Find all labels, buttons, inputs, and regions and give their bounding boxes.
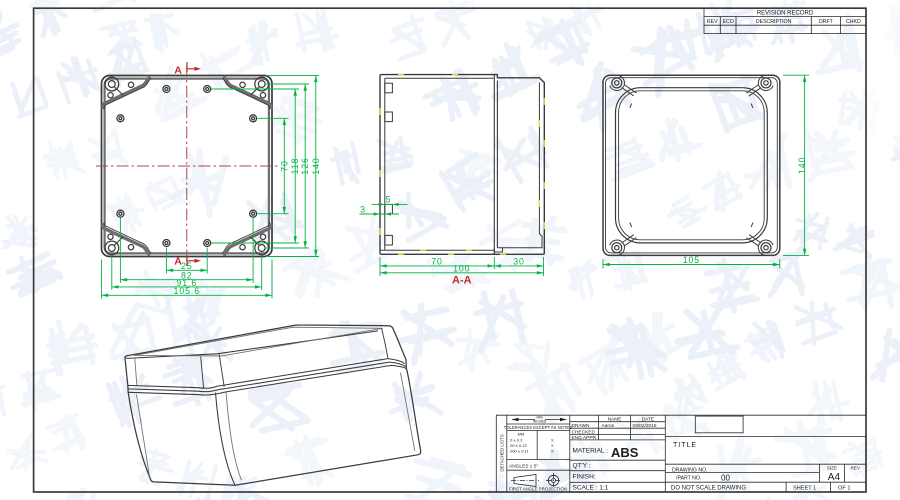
svg-text:70: 70 — [431, 257, 443, 267]
svg-text:.0 ± 0.3: .0 ± 0.3 — [509, 438, 523, 443]
svg-text:TOLERANCES EXCEPT AS NOTED: TOLERANCES EXCEPT AS NOTED — [504, 425, 573, 430]
svg-text:MATERIAL :: MATERIAL : — [573, 448, 609, 455]
svg-text:5: 5 — [386, 195, 392, 205]
svg-text:REVISION RECORD: REVISION RECORD — [757, 11, 814, 17]
svg-text:DATE: DATE — [642, 416, 654, 422]
svg-text:A4: A4 — [828, 472, 841, 483]
svg-text:SIZE: SIZE — [827, 466, 837, 471]
svg-text:FIRST ANGLE PROJECTION: FIRST ANGLE PROJECTION — [509, 487, 567, 492]
svg-text:CHECKED: CHECKED — [572, 429, 596, 435]
svg-text:.000 ± 0.11: .000 ± 0.11 — [509, 449, 529, 454]
svg-text:REV: REV — [707, 19, 718, 25]
svg-text:DRFT: DRFT — [819, 19, 834, 25]
svg-text:30: 30 — [513, 257, 525, 267]
svg-text:ECO: ECO — [723, 19, 734, 25]
svg-text:ABS: ABS — [611, 445, 639, 460]
svg-text:NAME: NAME — [608, 416, 622, 422]
svg-text:03/02/2015: 03/02/2015 — [633, 423, 657, 429]
svg-text:SCALE : 1:1: SCALE : 1:1 — [573, 485, 609, 492]
svg-text:TITLE: TITLE — [673, 442, 697, 449]
svg-text:X: X — [551, 438, 554, 443]
svg-text:X: X — [551, 449, 554, 454]
svg-text:DO NOT SCALE DRAWING: DO NOT SCALE DRAWING — [671, 486, 746, 492]
svg-text:ENG APPR: ENG APPR — [572, 435, 597, 441]
svg-text:126: 126 — [300, 157, 310, 174]
svg-text:FINISH:: FINISH: — [573, 474, 596, 481]
svg-text:CHKD: CHKD — [846, 19, 861, 25]
svg-text:118: 118 — [290, 158, 300, 175]
svg-text:140: 140 — [797, 157, 807, 174]
svg-text:A-A: A-A — [452, 275, 472, 287]
svg-text:ANGLES ± 5°: ANGLES ± 5° — [509, 464, 538, 470]
svg-text:DETACHED LISTS: DETACHED LISTS — [500, 434, 505, 471]
svg-text:140: 140 — [311, 157, 321, 174]
svg-text:105.6: 105.6 — [174, 286, 201, 296]
svg-text:DRAWN: DRAWN — [572, 423, 590, 429]
svg-text:.00 ± 0.12: .00 ± 0.12 — [509, 443, 528, 448]
svg-text:REV: REV — [850, 466, 860, 471]
svg-text:70: 70 — [279, 160, 289, 172]
svg-text:OF 1: OF 1 — [838, 486, 850, 492]
svg-text:A: A — [174, 65, 182, 77]
svg-text:DRAWING NO.: DRAWING NO. — [672, 467, 708, 473]
svg-text:QT'Y :: QT'Y : — [573, 463, 591, 470]
svg-text:DESCRIPTION: DESCRIPTION — [756, 19, 792, 25]
svg-text:INCHES: INCHES — [533, 420, 547, 424]
svg-text:105: 105 — [683, 255, 700, 265]
svg-text:100: 100 — [453, 264, 470, 274]
svg-text:MM: MM — [518, 432, 525, 437]
svg-text:SHEET 1: SHEET 1 — [793, 486, 816, 492]
svg-text:/PART NO.: /PART NO. — [676, 475, 701, 481]
svg-text:Aaron: Aaron — [602, 423, 615, 429]
svg-text:3: 3 — [360, 205, 366, 215]
svg-text:00: 00 — [721, 473, 730, 482]
svg-text:X: X — [551, 443, 554, 448]
